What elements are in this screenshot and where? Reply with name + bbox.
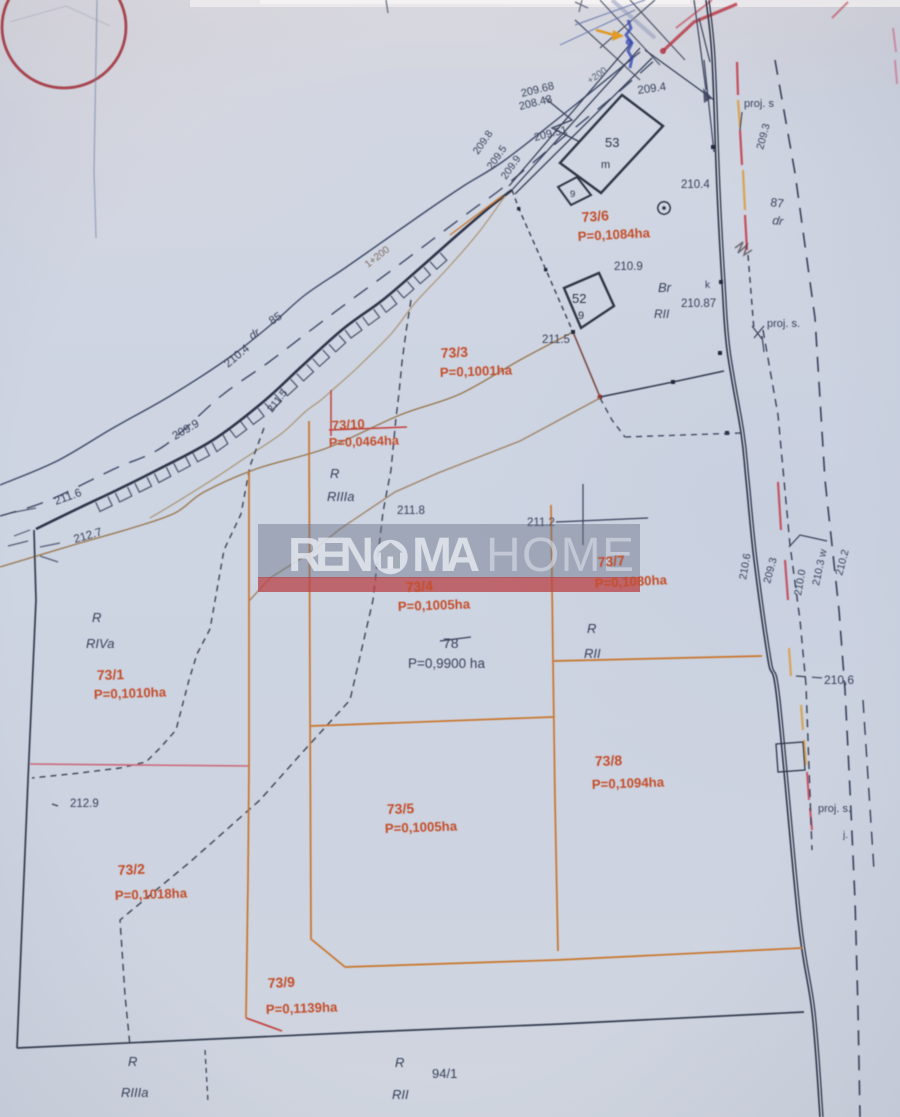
svg-text:proj. s.: proj. s.	[818, 803, 851, 815]
svg-text:proj. s.: proj. s.	[767, 318, 800, 330]
svg-text:RIIIa: RIIIa	[121, 1085, 148, 1100]
svg-text:211.5: 211.5	[542, 334, 570, 346]
svg-text:P=0,1139ha: P=0,1139ha	[266, 999, 339, 1017]
svg-text:73/3: 73/3	[440, 344, 468, 361]
svg-text:P=0,1005ha: P=0,1005ha	[398, 596, 471, 614]
svg-text:73/9: 73/9	[267, 974, 295, 991]
svg-text:RIVa: RIVa	[86, 636, 114, 651]
svg-text:73/8: 73/8	[595, 752, 623, 769]
svg-text:53: 53	[605, 135, 619, 150]
svg-text:94/1: 94/1	[432, 1066, 457, 1081]
svg-text:73/4: 73/4	[405, 578, 433, 595]
svg-text:210.4: 210.4	[681, 179, 710, 191]
svg-text:9: 9	[570, 189, 575, 200]
svg-text:R: R	[92, 610, 101, 625]
svg-text:j.: j.	[842, 830, 848, 841]
svg-text:73/10: 73/10	[331, 416, 365, 433]
svg-text:P=0,1094ha: P=0,1094ha	[592, 774, 665, 792]
svg-text:m: m	[601, 159, 610, 171]
svg-text:P=0,1001ha: P=0,1001ha	[440, 362, 513, 380]
svg-text:73/6: 73/6	[581, 207, 610, 225]
svg-text:9: 9	[578, 310, 584, 322]
svg-text:R: R	[128, 1054, 137, 1069]
svg-text:87: 87	[770, 195, 785, 211]
svg-text:73/5: 73/5	[387, 800, 415, 817]
svg-text:P=0,1005ha: P=0,1005ha	[385, 818, 458, 836]
svg-text:RII: RII	[392, 1087, 409, 1102]
svg-text:P=0,1018ha: P=0,1018ha	[115, 885, 188, 903]
svg-text:proj. s: proj. s	[744, 98, 774, 110]
svg-text:73/2: 73/2	[117, 861, 145, 878]
svg-text:210.9: 210.9	[614, 261, 643, 273]
svg-text:REN: REN	[288, 529, 374, 582]
svg-text:210.87: 210.87	[681, 298, 716, 310]
svg-text:P=0,0464ha: P=0,0464ha	[329, 433, 400, 450]
svg-text:R: R	[587, 621, 596, 636]
svg-text:RII: RII	[654, 307, 670, 321]
svg-text:211.8: 211.8	[397, 505, 425, 517]
svg-text:212.9: 212.9	[70, 798, 99, 810]
svg-text:P=0,9900 ha: P=0,9900 ha	[408, 656, 485, 671]
svg-text:210,6: 210,6	[824, 673, 854, 687]
svg-text:52: 52	[572, 291, 586, 306]
svg-text:Br: Br	[658, 280, 672, 295]
svg-text:73/1: 73/1	[97, 666, 125, 683]
svg-text:RII: RII	[584, 646, 601, 661]
svg-text:73/7: 73/7	[597, 552, 626, 570]
svg-text:RIIIa: RIIIa	[327, 489, 354, 504]
svg-text:MA: MA	[412, 529, 480, 582]
svg-text:R: R	[395, 1055, 404, 1070]
svg-text:R: R	[330, 466, 339, 481]
svg-text:P=0,1010ha: P=0,1010ha	[94, 684, 167, 702]
svg-text:78: 78	[443, 635, 459, 651]
